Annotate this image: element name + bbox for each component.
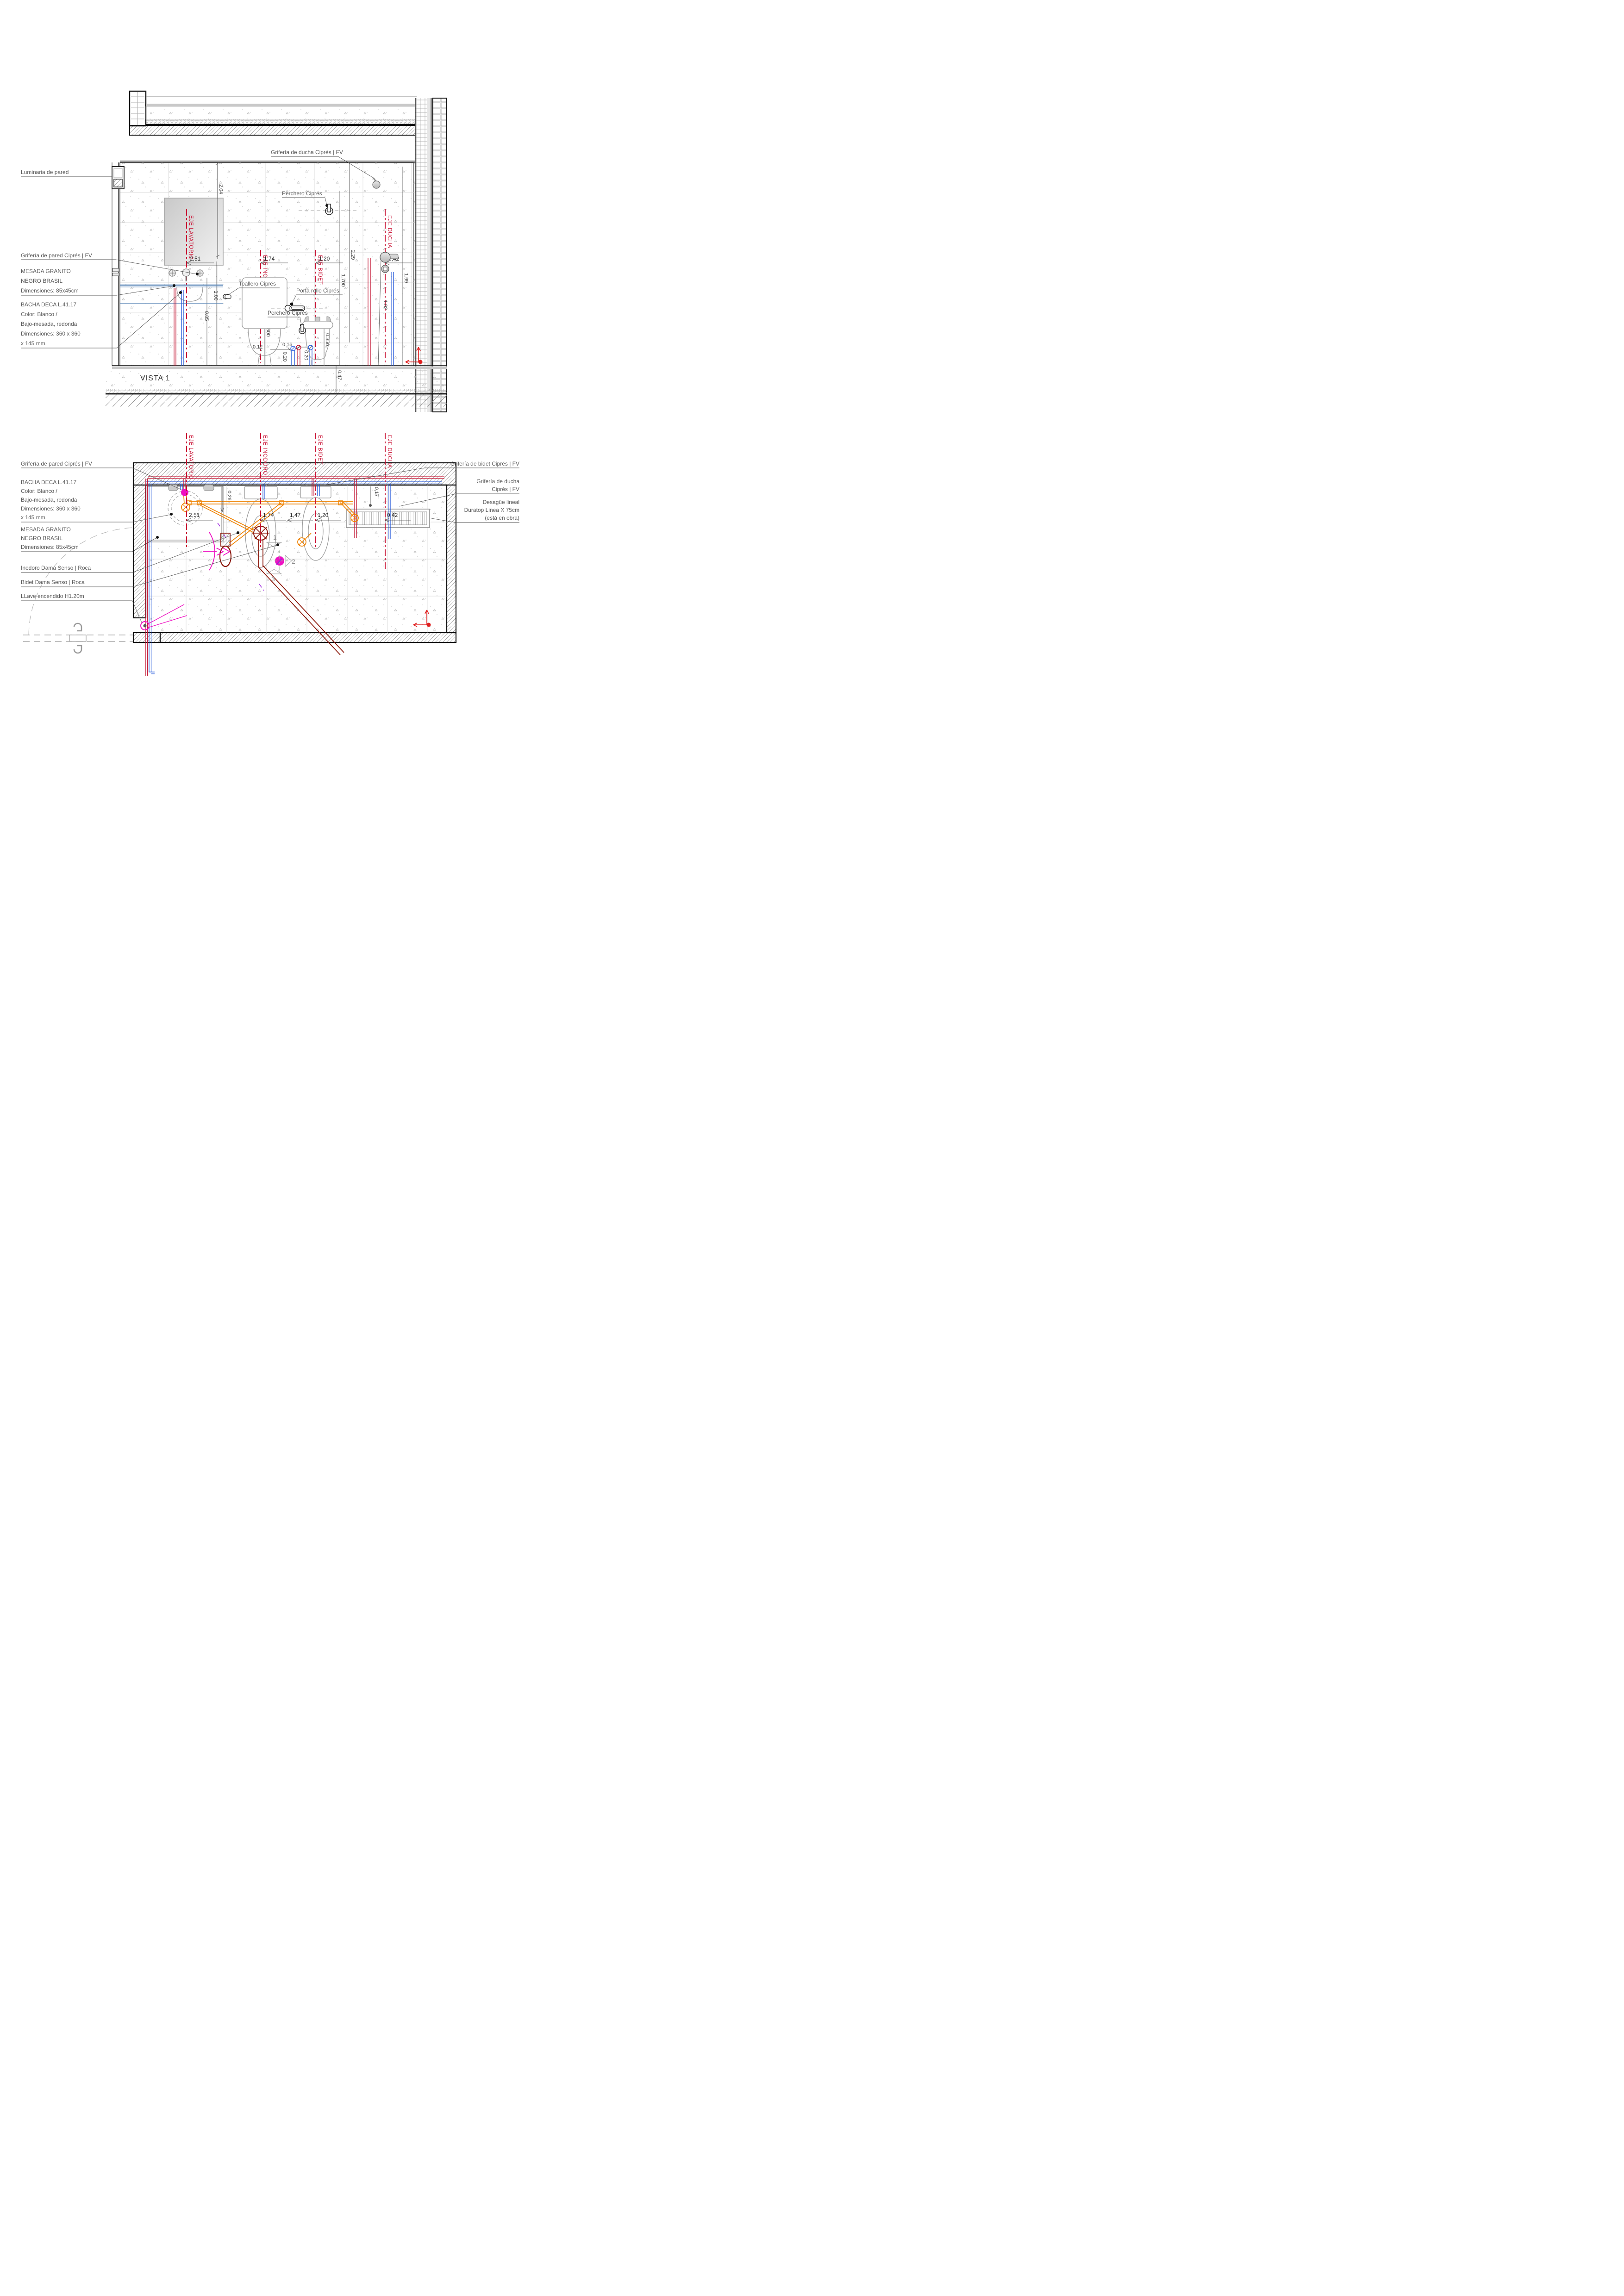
- view-title: VISTA 1: [140, 374, 170, 382]
- mesada-line-3: Dimensiones: 85x45cm: [21, 287, 79, 294]
- dim-1-00: 1.00: [213, 291, 219, 300]
- dim-0-20a: 0.20: [282, 352, 287, 361]
- plan-dim-0-26: 0,26: [226, 491, 232, 500]
- plan-mesada-3: Dimensiones: 85x45cm: [21, 544, 79, 550]
- plan-dim-0-42: 0,42: [387, 512, 398, 518]
- drawing-sheet: VISTA 1 Luminaria de pared Grifería de d…: [0, 0, 541, 765]
- dim-0-85: 0.85: [204, 311, 209, 321]
- label-porta-rollo: Porta rollo Ciprés: [296, 287, 339, 294]
- marker-2: 2: [292, 558, 295, 565]
- right-wall-section: [414, 98, 447, 412]
- plan-label-desague-1: Desagüe lineal: [483, 499, 519, 505]
- plan-label-inodoro: Inodoro Dama Senso | Roca: [21, 565, 91, 571]
- plan-label-llave: LLave encendido H1.20m: [21, 593, 84, 599]
- mesada-line-2: NEGRO BRASIL: [21, 278, 62, 284]
- dim-1-700: 1.700: [340, 274, 346, 287]
- dim-2-51: 2,51: [190, 255, 201, 262]
- plan-dim-0-17: 0,17: [374, 487, 379, 497]
- axis-lavatorio: EJE LAVATORIO: [188, 215, 194, 260]
- plan-bacha-5: x 145 mm.: [21, 514, 47, 521]
- ceiling-structure: [120, 91, 419, 163]
- plan-label-griferia-ducha-1: Grifería de ducha: [476, 478, 519, 485]
- plan-dim-1-74: 1,74: [263, 512, 274, 518]
- plan-dim-1-47: 1,47: [290, 512, 301, 518]
- bathroom-drawing: VISTA 1 Luminaria de pared Grifería de d…: [0, 0, 541, 765]
- plan-bacha-1: BACHA DECA L.41.17: [21, 479, 76, 485]
- label-perchero-2: Perchero Ciprés: [268, 310, 308, 316]
- bacha-line-1: BACHA DECA L.41.17: [21, 301, 76, 308]
- dim-0-20b: 0.20: [303, 350, 309, 360]
- floor-structure: [106, 366, 447, 407]
- plan-label-bidet: Bidet Dama Senso | Roca: [21, 579, 85, 585]
- wall-lamp: [112, 167, 124, 189]
- marker-3: 3: [271, 575, 275, 583]
- mesada-line-1: MESADA GRANITO: [21, 268, 71, 274]
- dim-1-74: 1,74: [264, 255, 275, 262]
- dim-2-29: 2.29: [350, 250, 356, 260]
- label-griferia-pared: Grifería de pared Ciprés | FV: [21, 252, 92, 259]
- label-griferia-ducha: Grifería de ducha Ciprés | FV: [271, 149, 343, 156]
- marker-1: 1: [273, 534, 277, 541]
- dim-1-99: 1.99: [403, 273, 409, 283]
- dim-2-04: 2.04: [218, 184, 224, 194]
- plan-dim-2-51: 2,51: [189, 512, 200, 518]
- plan-label-desague-2: Duratop Linea X 75cm: [464, 507, 519, 513]
- plan-mesada-2: NEGRO BRASIL: [21, 535, 62, 541]
- plan-view: 1 2 3 EJE LAVATORIO EJE INODORO EJE BIDE…: [21, 433, 519, 676]
- plan-label-griferia-pared: Grifería de pared Ciprés | FV: [21, 460, 92, 467]
- bacha-line-2: Color: Blanco /: [21, 311, 57, 317]
- plan-axis-inodoro: EJE INODORO: [262, 435, 268, 475]
- plan-mesada-1: MESADA GRANITO: [21, 526, 71, 533]
- label-toallero: Toallero Ciprés: [239, 280, 276, 287]
- axis-ducha: EJE DUCHA: [387, 215, 392, 248]
- luminaria-label: Luminaria de pared: [21, 169, 112, 176]
- plan-bacha-2: Color: Blanco /: [21, 488, 57, 494]
- bacha-line-5: x 145 mm.: [21, 340, 47, 347]
- dim-0-16: 0.16: [282, 342, 292, 348]
- bacha-line-3: Bajo-mesada, redonda: [21, 321, 77, 327]
- dim-1-02: 1.02: [382, 300, 388, 310]
- faucet-point: [181, 489, 188, 496]
- plan-bacha-3: Bajo-mesada, redonda: [21, 497, 77, 503]
- plan-bacha-4: Dimensiones: 360 x 360: [21, 505, 81, 512]
- plan-axis-lavatorio: EJE LAVATORIO: [188, 435, 194, 479]
- plan-axis-bidet: EJE BIDET: [317, 435, 323, 465]
- plan-label-griferia-bidet: Grifería de bidet Ciprés | FV: [450, 460, 519, 467]
- bacha-line-4: Dimensiones: 360 x 360: [21, 330, 81, 337]
- elevation-view: VISTA 1 Luminaria de pared Grifería de d…: [21, 91, 447, 412]
- plan-label-desague-3: (está en obra): [485, 515, 519, 521]
- dim-1-20: 1,20: [319, 255, 330, 262]
- plan-axis-ducha: EJE DUCHA: [387, 435, 392, 468]
- plan-dim-1-20: 1,20: [318, 512, 329, 518]
- plan-label-griferia-ducha-2: Ciprés | FV: [492, 486, 519, 492]
- dim-0-47: 0.47: [337, 370, 342, 380]
- label-luminaria: Luminaria de pared: [21, 169, 69, 175]
- dim-0-12: 0.12: [253, 344, 262, 350]
- label-perchero-top: Perchero Ciprés: [282, 190, 322, 197]
